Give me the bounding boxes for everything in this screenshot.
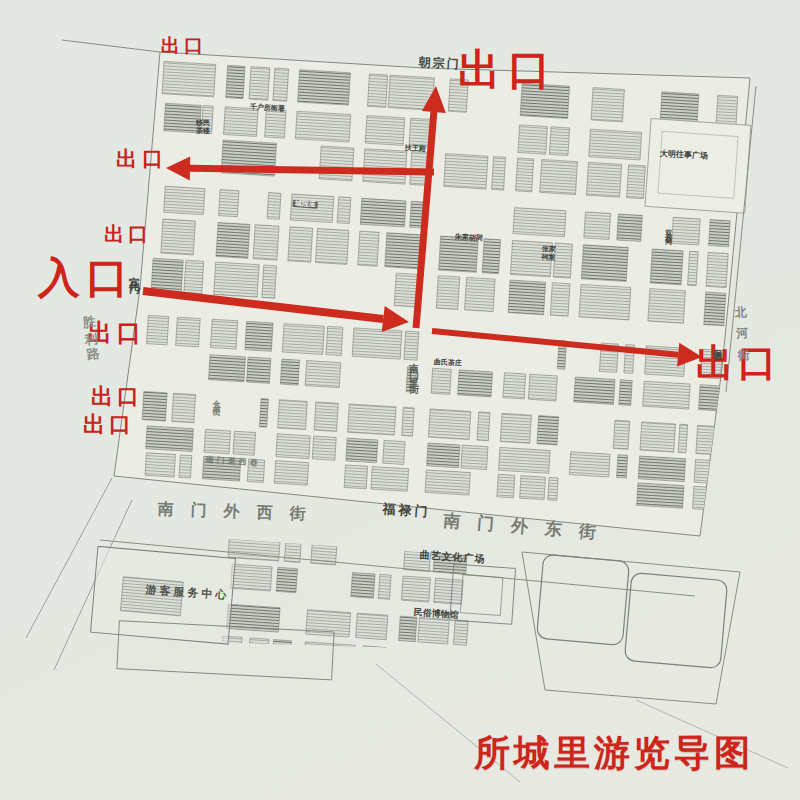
gate-south-label: 福禄门 bbox=[382, 502, 431, 519]
exit-label-west-1: 出口 bbox=[116, 148, 168, 170]
daming-square-area bbox=[645, 118, 751, 213]
exit-label-nw: 出口 bbox=[161, 36, 207, 56]
street-nanmenli: 南门里街 bbox=[408, 355, 419, 383]
gate-north-label: 朝宗门 bbox=[418, 56, 461, 71]
poi-zhujia-hutong: 朱家胡同 bbox=[455, 234, 483, 243]
exit-label-west-5: 出口 bbox=[83, 413, 135, 436]
poi-fuwang-hall: 扶王殿 bbox=[405, 145, 426, 153]
entrance-label: 入口 bbox=[38, 256, 134, 300]
exit-label-north: 出口 bbox=[458, 48, 558, 92]
poi-qushi-teahouse: 曲氏茶庄 bbox=[434, 359, 462, 368]
street-cangyu: 仓余街 bbox=[211, 394, 219, 406]
poi-shuangxing-hutong: 双兴胡同 bbox=[664, 224, 671, 236]
parking-lot-west bbox=[537, 554, 630, 645]
exit-label-west-2: 出口 bbox=[104, 224, 152, 245]
poi-yimin-teahouse: 移民茶楼 bbox=[196, 119, 211, 135]
exit-label-west-4: 出口 bbox=[91, 385, 143, 408]
map-title: 所城里游览导图 bbox=[474, 734, 754, 772]
gate-west-label: 宣化门 bbox=[128, 268, 140, 277]
tour-map: 出口 出口 出口 入口 出口 出口 出口 出口 出口 所城里游览导图 朝宗门 宣… bbox=[0, 0, 800, 800]
gate-east-label: 保德 bbox=[712, 342, 721, 346]
parking-lot-east bbox=[624, 573, 727, 669]
poi-zhangjia-temple: 张家祠堂 bbox=[541, 245, 558, 262]
